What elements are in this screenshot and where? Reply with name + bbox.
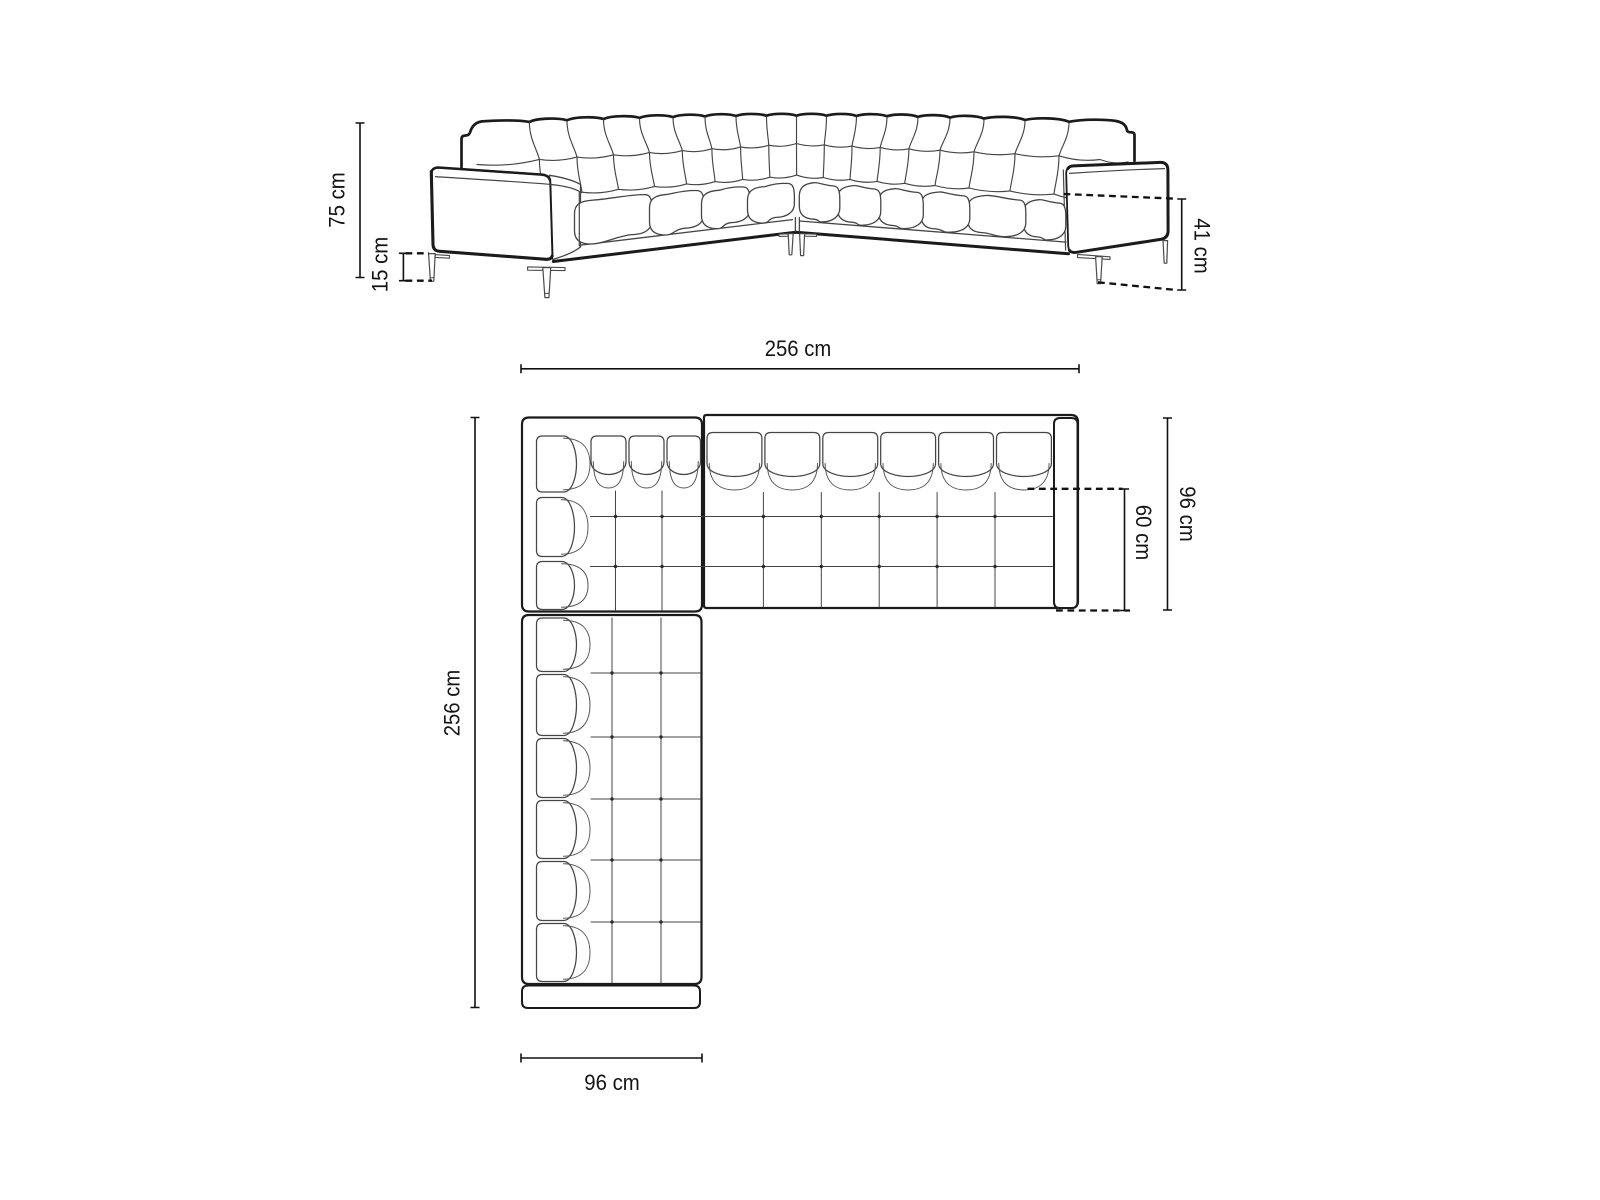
svg-text:96 cm: 96 cm: [1175, 486, 1200, 542]
svg-text:41 cm: 41 cm: [1190, 218, 1215, 274]
svg-text:60 cm: 60 cm: [1131, 505, 1156, 561]
svg-text:96 cm: 96 cm: [584, 1070, 640, 1095]
svg-text:256 cm: 256 cm: [765, 336, 832, 361]
svg-text:256 cm: 256 cm: [440, 670, 465, 737]
svg-text:75 cm: 75 cm: [325, 172, 350, 228]
svg-text:15 cm: 15 cm: [368, 237, 393, 293]
